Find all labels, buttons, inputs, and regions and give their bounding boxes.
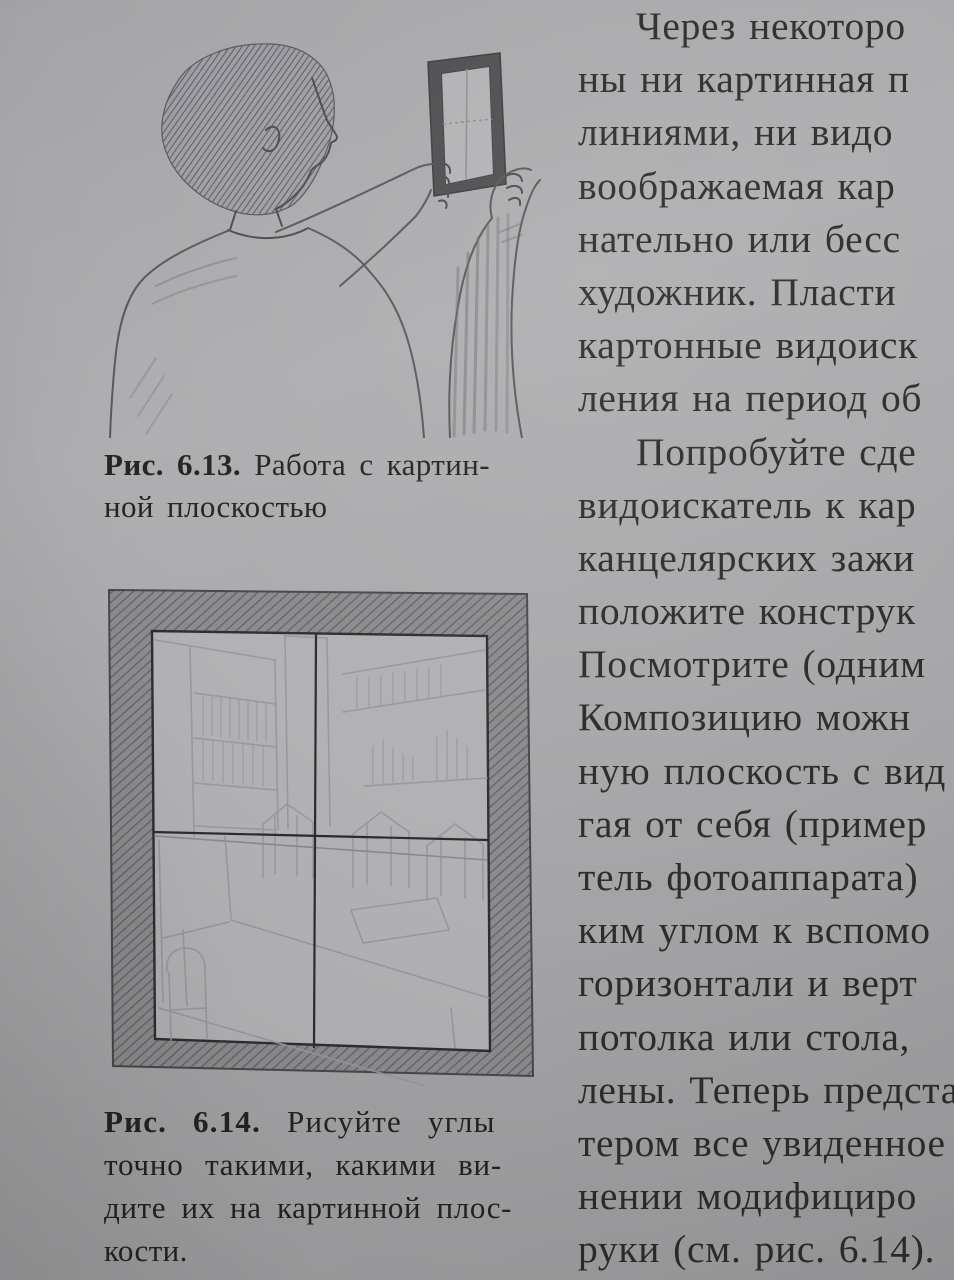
text-line: Посмотрите (одним xyxy=(578,638,954,691)
text-line: картонные видоиск xyxy=(578,319,954,372)
text-line: лены. Теперь предста xyxy=(578,1064,954,1117)
text-line: ким углом к вспомо xyxy=(578,904,954,957)
figure-6-13-sketch xyxy=(60,18,560,438)
text-line: гая от себя (пример xyxy=(578,798,954,851)
text-line: Через некоторо xyxy=(578,0,954,53)
text-line: видоискатель к кар xyxy=(578,479,954,532)
text-line: тель фотоаппарата) xyxy=(578,851,954,904)
caption-line: Рис. 6.13. Работа с картин- xyxy=(104,444,554,486)
figure-label: Рис. 6.14. xyxy=(104,1104,261,1139)
body-text-column: Через некотороны ни картинная плиниями, … xyxy=(578,0,954,1280)
text-line: положите конструк xyxy=(578,585,954,638)
text-line: художник. Пласти xyxy=(578,266,954,319)
caption-line: дите их на картинной плос- xyxy=(104,1186,556,1229)
text-line: канцелярских зажи xyxy=(578,532,954,585)
caption-line: ной плоскостью xyxy=(104,486,554,528)
text-line: линиями, ни видо xyxy=(578,106,954,159)
figure-6-14-sketch xyxy=(95,578,540,1090)
text-line: нательно или бесс xyxy=(578,213,954,266)
figure-6-13-caption: Рис. 6.13. Работа с картин- ной плоскост… xyxy=(104,444,554,528)
caption-line: кости. xyxy=(104,1229,556,1272)
text-line: тером все увиденное xyxy=(578,1117,954,1170)
text-line: ную плоскость с вид xyxy=(578,745,954,798)
text-line: ны ни картинная п xyxy=(578,53,954,106)
caption-line: Рис. 6.14. Рисуйте углы xyxy=(104,1100,556,1143)
text-line: воображаемая кар xyxy=(578,160,954,213)
text-line: Композицию можн xyxy=(578,691,954,744)
viewfinder-frame xyxy=(428,53,506,196)
text-line: ления на период об xyxy=(578,372,954,425)
text-line: горизонтали и верт xyxy=(578,957,954,1010)
text-line: потолка или стола, xyxy=(578,1011,954,1064)
figure-6-14-caption: Рис. 6.14. Рисуйте углы точно такими, ка… xyxy=(104,1100,556,1272)
head-hair xyxy=(162,44,335,215)
text-line: нении модифициро xyxy=(578,1170,954,1223)
figure-label: Рис. 6.13. xyxy=(104,447,241,482)
text-line: руки (см. рис. 6.14). xyxy=(578,1223,954,1276)
book-page-photo: Рис. 6.13. Работа с картин- ной плоскост… xyxy=(0,0,954,1280)
caption-line: точно такими, какими ви- xyxy=(104,1143,556,1186)
text-line: Попробуйте сде xyxy=(578,426,954,479)
